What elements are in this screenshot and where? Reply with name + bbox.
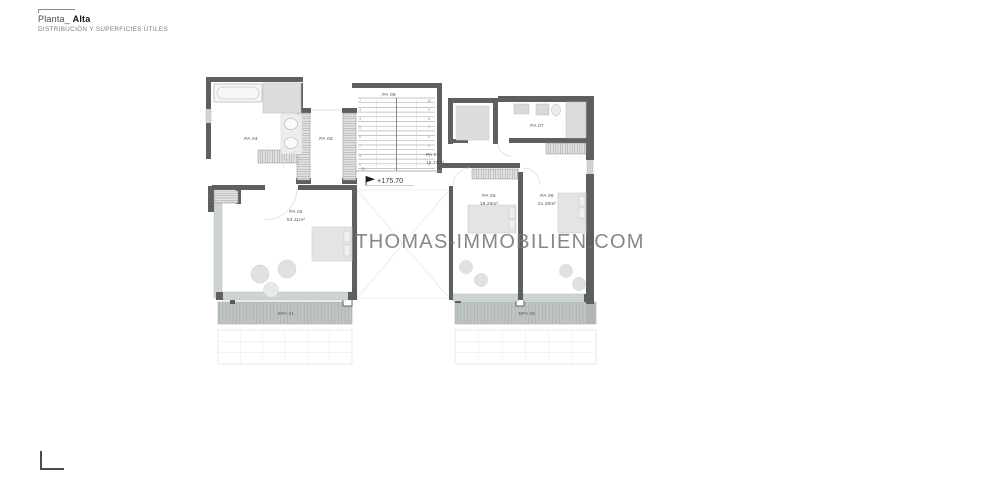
window-pa04 <box>206 109 211 123</box>
label-pa05: PA 05 <box>482 193 496 199</box>
window-pa06-south <box>523 294 586 301</box>
wardrobe-pa02 <box>214 191 238 203</box>
basin <box>514 104 529 114</box>
window-east <box>587 160 593 174</box>
sheet-subtitle: DISTRIBUCIÓN Y SUPERFICIES ÚTILES <box>38 26 168 33</box>
closet-shower <box>456 106 489 140</box>
basin <box>536 104 549 115</box>
label-pa04: PA 04 <box>244 136 258 142</box>
chair <box>573 278 586 291</box>
label-pa06: PA 06 <box>540 193 554 199</box>
armchair <box>251 265 269 283</box>
label-epa01: EPA 01 <box>278 311 294 316</box>
shower-pa07 <box>566 102 586 138</box>
chair <box>475 274 488 287</box>
area-pa05: 18.26m² <box>480 201 499 206</box>
title-block: Planta_ Alta DISTRIBUCIÓN Y SUPERFICIES … <box>38 9 168 33</box>
chair <box>460 261 473 274</box>
sheet-title-emphasis: Alta <box>73 14 91 24</box>
elevation-marker: +175.70 <box>366 176 414 186</box>
label-pa07: PA 07 <box>530 123 544 129</box>
stair-numbers-left: 2 3 4 5 6 7 8 9 <box>355 97 365 170</box>
area-pa06: 21.30m² <box>538 201 557 206</box>
plan-sheet: Planta_ Alta DISTRIBUCIÓN Y SUPERFICIES … <box>0 0 1000 487</box>
sheet-title-prefix: Planta_ <box>38 14 70 24</box>
label-pa08: PA 08 <box>382 92 396 98</box>
label-epa02: EPA 02 <box>519 311 535 316</box>
watermark: THOMAS-IMMOBILIEN.COM <box>0 231 1000 254</box>
window-pa02-south <box>222 292 352 300</box>
corner-mark <box>40 451 64 470</box>
title-rule <box>38 9 75 13</box>
stairs-pa08 <box>311 98 442 171</box>
wc <box>552 104 561 116</box>
area-pa02: 53.11m² <box>287 217 305 222</box>
stair-numbers-right: 10 9 8 7 6 5 4 3 <box>424 97 434 170</box>
window-pa05-south <box>453 294 518 301</box>
lower-level-outline <box>218 330 596 364</box>
elevation-label: +175.70 <box>377 176 403 185</box>
armchair <box>278 260 296 278</box>
terrace-edge <box>586 302 595 324</box>
chair <box>560 265 573 278</box>
side-table <box>264 283 279 298</box>
label-pa02: PA 02 <box>289 209 303 215</box>
label-pa03: PA 03 <box>319 136 333 142</box>
shower-pa04 <box>263 83 301 113</box>
wardrobe-pa05 <box>472 169 518 179</box>
wardrobe-pa06 <box>546 143 586 154</box>
sink <box>285 138 298 149</box>
sheet-title: Planta_ Alta <box>38 14 168 24</box>
sink <box>285 119 298 130</box>
